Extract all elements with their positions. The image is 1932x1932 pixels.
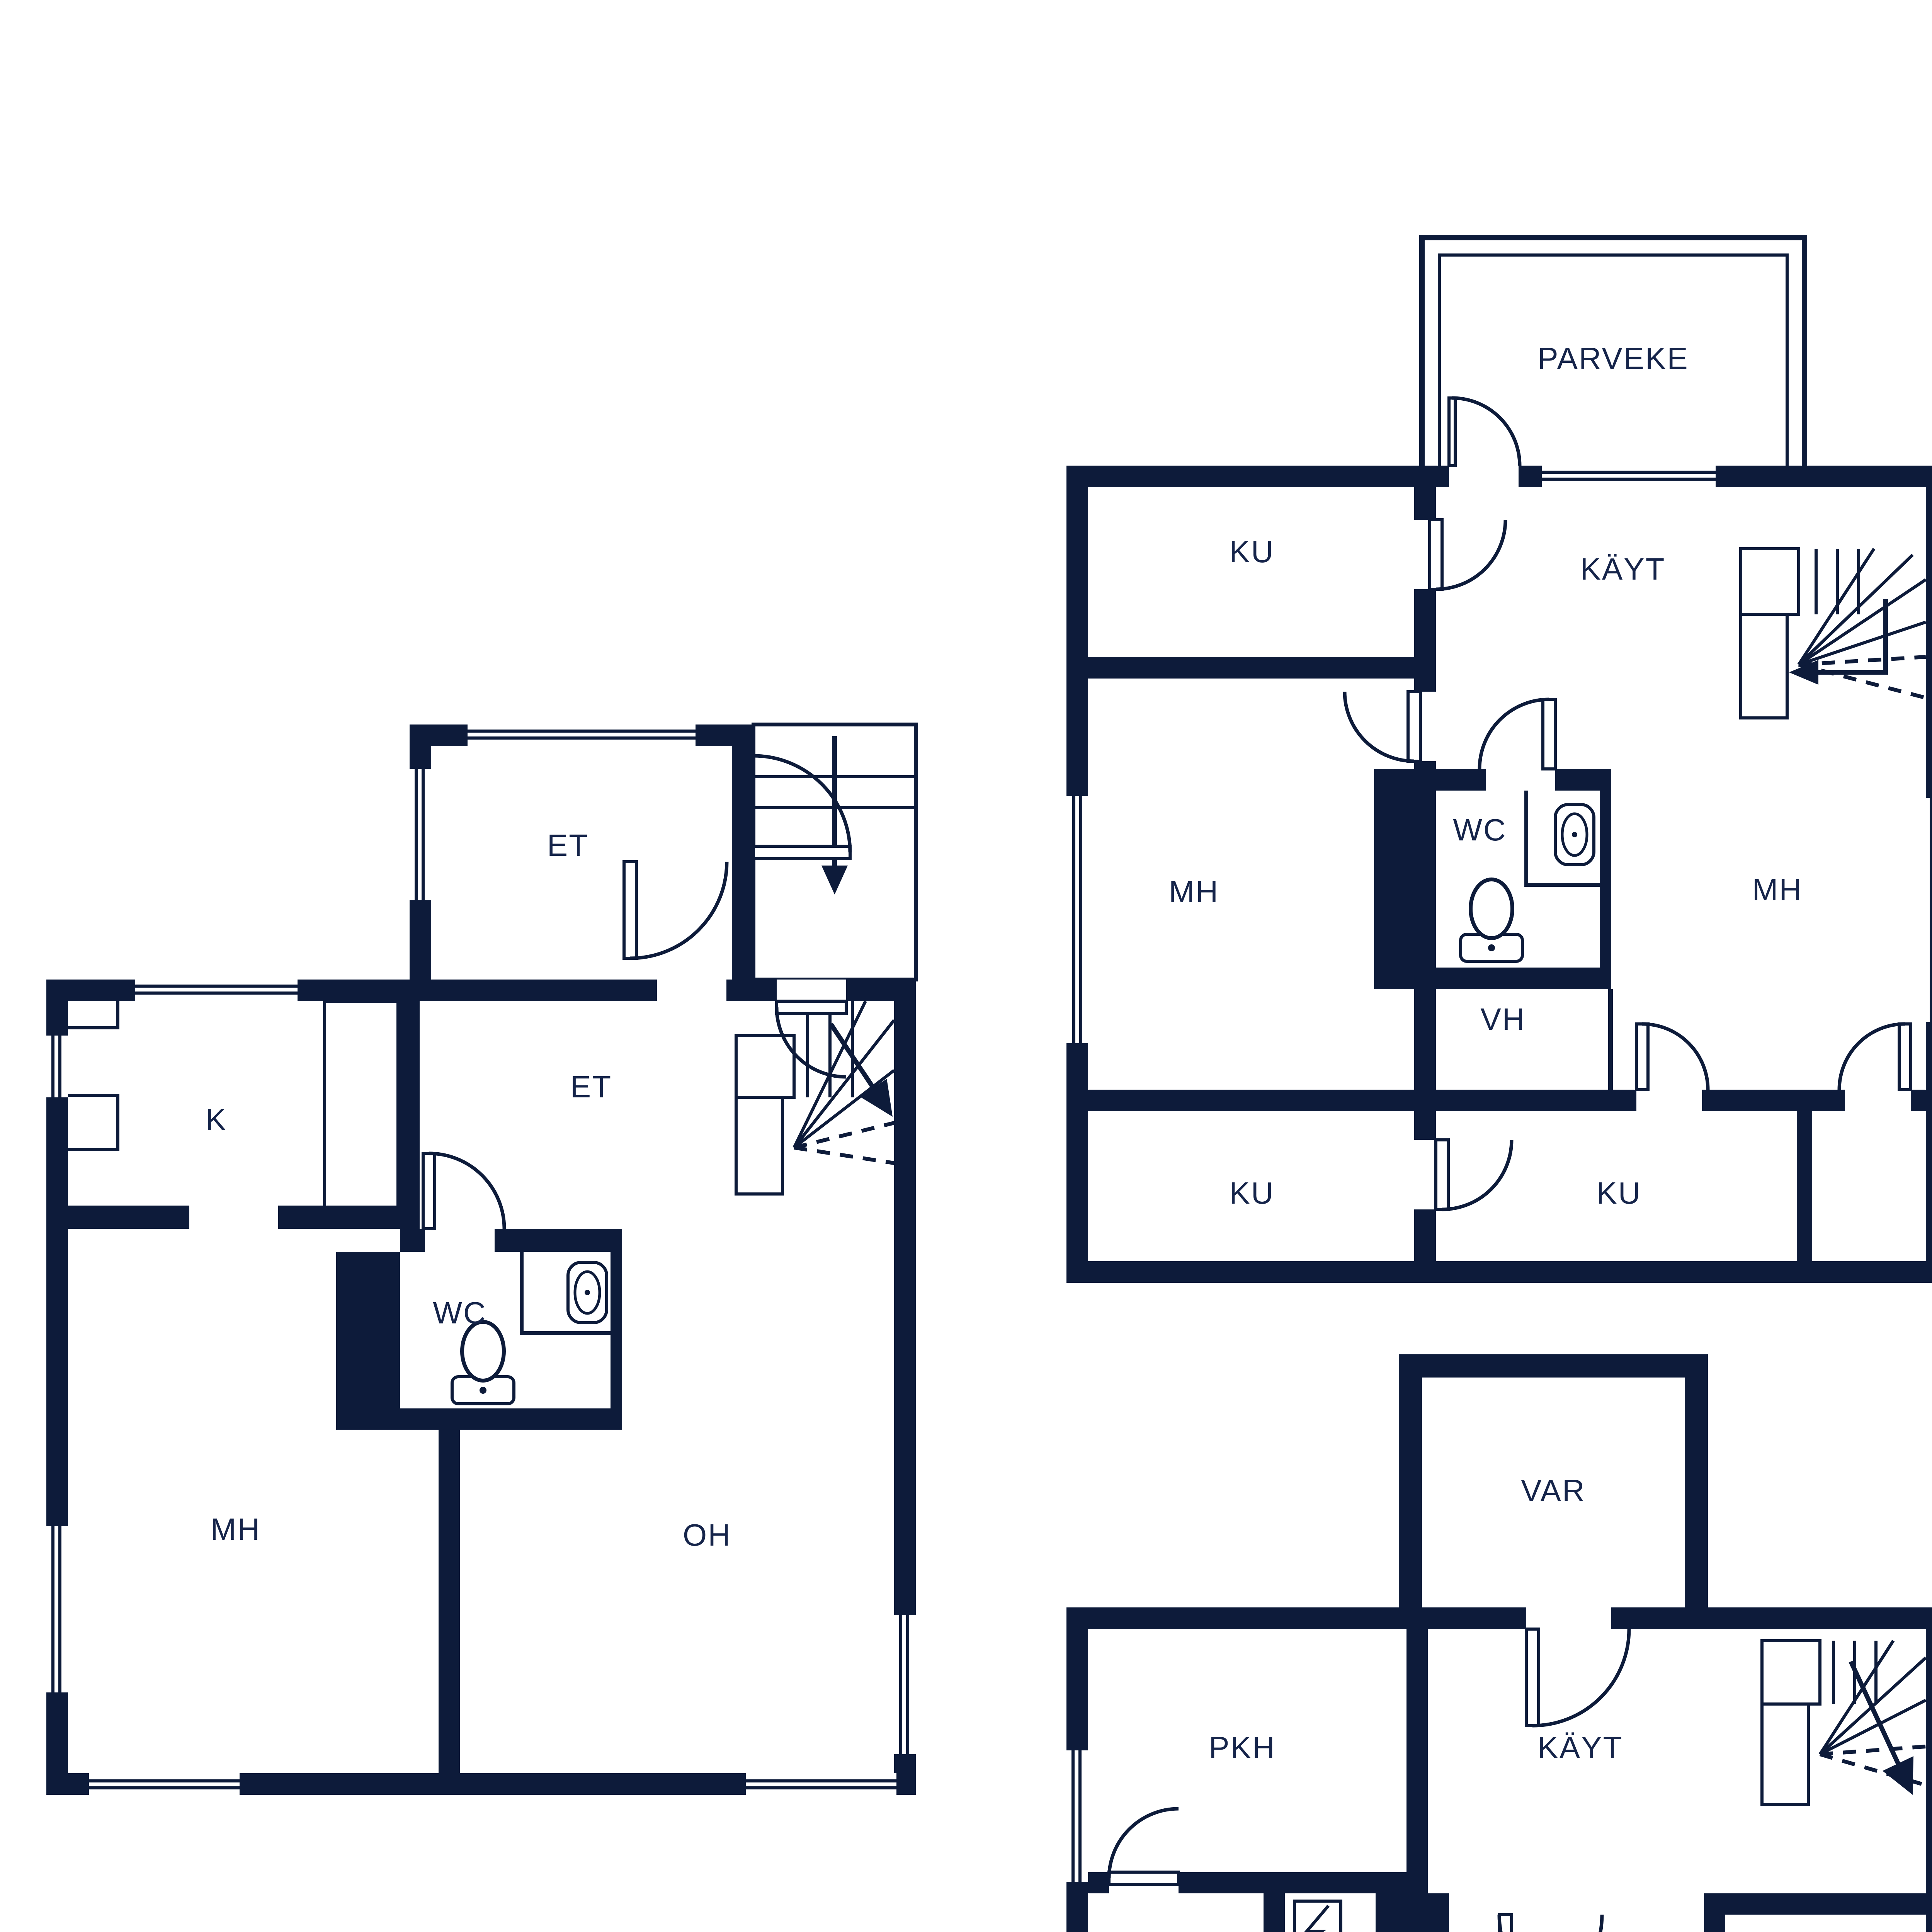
toilet-icon (1461, 879, 1522, 961)
door (1526, 1629, 1629, 1726)
room-label-kayt: KÄYT (1580, 552, 1666, 586)
floor1-plan: ET ET K WC MH OH (46, 724, 916, 1795)
window (46, 1036, 68, 1097)
window (1542, 466, 1716, 487)
room-label-parveke: PARVEKE (1537, 341, 1689, 376)
window (410, 769, 431, 900)
staircase (736, 1001, 894, 1194)
staircase (1741, 549, 1926, 718)
sink-icon (568, 1262, 607, 1323)
room-label-vh: VH (1480, 1002, 1526, 1036)
room-label-pkh: PKH (1209, 1730, 1276, 1765)
door (1636, 1024, 1708, 1090)
room-label-oh: OH (683, 1518, 731, 1552)
room-label-ku-bottom-right: KU (1596, 1176, 1641, 1210)
window (135, 980, 298, 1001)
basement-plan: VAR PKH KÄYT PH S VAR VAR VAR KÄYT (1066, 1354, 1932, 1932)
room-label-var-top: VAR (1521, 1473, 1586, 1508)
floorplan-sheet: { "colors": { "wall": "#0d1b3a", "label"… (0, 0, 1932, 1932)
room-label-kayt-upper: KÄYT (1538, 1730, 1623, 1765)
room-label-mh: MH (211, 1512, 261, 1546)
toilet-icon (452, 1322, 514, 1404)
chimney-block (1376, 1893, 1449, 1932)
window (89, 1773, 240, 1795)
door (1109, 1809, 1179, 1884)
room-label-et-hall: ET (570, 1070, 612, 1104)
door (1449, 398, 1520, 466)
staircase (1762, 1641, 1926, 1804)
room-label-mh-right: MH (1752, 872, 1803, 907)
stair-direction-arrow (821, 866, 848, 895)
entrance-stairs (753, 724, 916, 980)
door (624, 862, 727, 958)
door (1436, 1140, 1512, 1209)
window (894, 1615, 916, 1754)
door (1480, 699, 1555, 769)
window (1066, 1750, 1088, 1882)
chimney-block (336, 1252, 400, 1430)
room-label-et-upper: ET (547, 828, 589, 862)
window (1926, 798, 1932, 1022)
window (468, 724, 696, 746)
room-label-ku-bottom-left: KU (1229, 1176, 1274, 1210)
window (746, 1773, 896, 1795)
door (1430, 520, 1505, 589)
kitchen-counter-outline (68, 1001, 398, 1210)
room-label-wc: WC (1453, 813, 1507, 847)
floor-plan-drawing: PARVEKE KU KÄYT WC MH MH VH KU KU (0, 0, 1932, 1932)
room-label-mh-left: MH (1169, 874, 1219, 909)
sink-icon (1555, 804, 1594, 865)
door (1345, 692, 1420, 761)
room-label-ku-top: KU (1229, 534, 1274, 569)
floor2-plan: PARVEKE KU KÄYT WC MH MH VH KU KU (1066, 238, 1932, 1283)
window (1066, 796, 1088, 1043)
window (46, 1526, 68, 1692)
room-label-wc: WC (433, 1296, 486, 1330)
sauna-stove-icon (1294, 1901, 1341, 1932)
door (1499, 1915, 1602, 1932)
door (423, 1153, 504, 1229)
chimney-block (1374, 791, 1436, 968)
room-label-k: K (206, 1102, 227, 1137)
door (1839, 1024, 1911, 1090)
